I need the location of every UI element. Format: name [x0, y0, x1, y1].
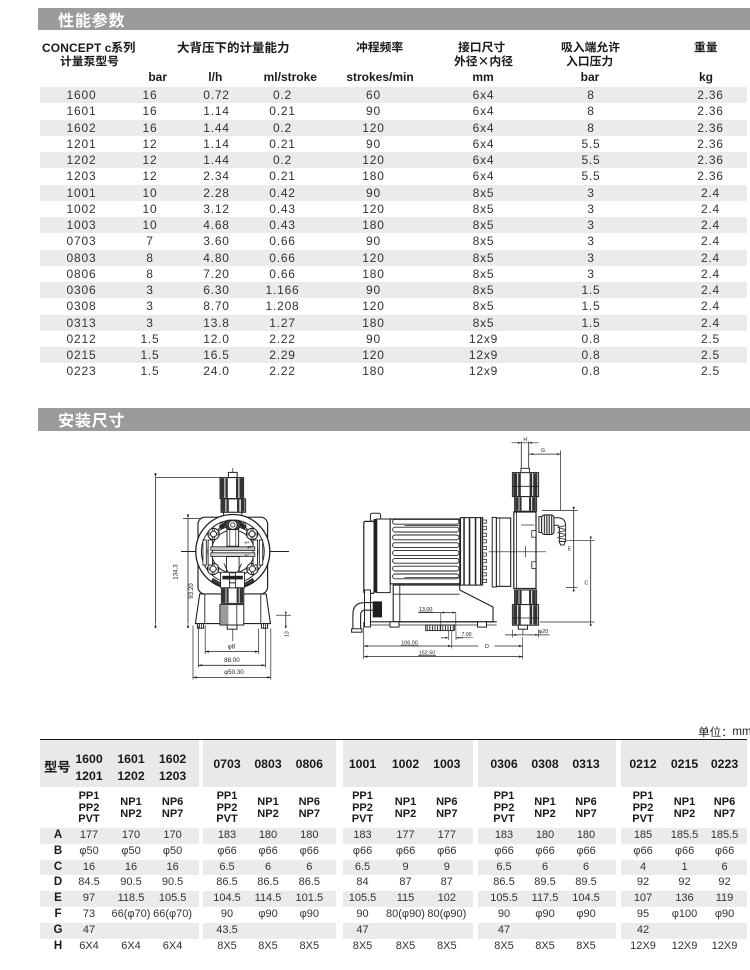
svg-text:134.3: 134.3	[173, 564, 180, 580]
svg-text:13: 13	[285, 631, 291, 637]
svg-text:φ50.30: φ50.30	[224, 669, 244, 676]
svg-text:C: C	[584, 581, 588, 587]
svg-text:φ8: φ8	[228, 643, 236, 650]
svg-text:φ6: φ6	[247, 545, 251, 549]
svg-text:φ4: φ4	[245, 540, 249, 544]
svg-text:88.00: 88.00	[224, 657, 240, 664]
svg-text:E: E	[568, 547, 572, 553]
svg-text:A7: A7	[245, 553, 249, 557]
svg-text:G: G	[541, 448, 545, 454]
svg-text:H: H	[523, 437, 527, 443]
svg-text:φ20: φ20	[539, 629, 549, 635]
svg-text:D: D	[485, 644, 489, 650]
svg-text:93.20: 93.20	[188, 583, 195, 599]
